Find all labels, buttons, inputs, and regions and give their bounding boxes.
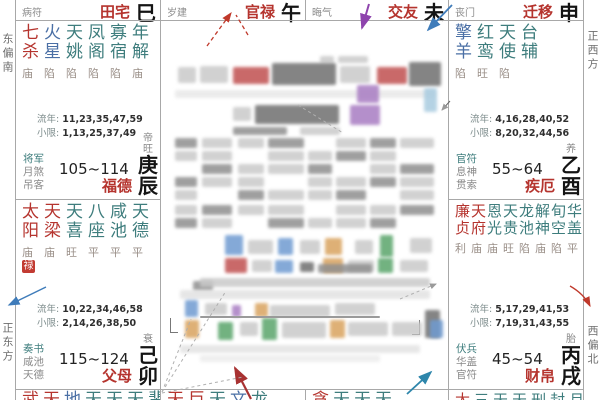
redacted-block: [238, 205, 264, 215]
year-numbers: 流年: 5,17,29,41,53小限: 7,19,31,43,55: [470, 303, 569, 331]
num-values: 4,16,28,40,52: [495, 114, 569, 125]
star-天府: 天府庙: [471, 203, 487, 252]
star-char: 盖: [567, 220, 582, 237]
redacted-block: [400, 190, 434, 200]
redacted-block: [424, 88, 437, 112]
clipped-star-top: 天: [167, 391, 184, 400]
star-恩光: 恩光庙: [487, 203, 503, 252]
bottom-palace-clipped: 天巨天文龙: [160, 389, 305, 400]
redacted-block: [308, 151, 332, 161]
star-char: 太: [22, 203, 39, 222]
star-status: 平: [88, 244, 99, 256]
clipped-star-top: 文: [230, 391, 247, 400]
year-numbers: 流年: 10,22,34,46,58小限: 2,14,26,38,50: [37, 303, 143, 331]
redacted-block: [392, 322, 422, 336]
num-label: 流年:: [470, 304, 495, 315]
clipped-star-top: 天: [85, 391, 102, 400]
liunian-line: 流年: 10,22,34,46,58: [37, 303, 143, 317]
redacted-block: [252, 260, 272, 272]
star-status: 旺: [66, 244, 77, 256]
clipped-star-top: 三: [474, 391, 489, 400]
num-label: 流年:: [470, 114, 495, 125]
star-char: 凤: [88, 24, 105, 43]
star-char: 解: [535, 203, 550, 220]
num-values: 5,17,29,41,53: [495, 304, 569, 315]
redacted-block: [233, 67, 269, 84]
star-char: 辅: [521, 43, 538, 62]
redacted-block: [350, 105, 380, 125]
god-月煞: 月煞: [23, 166, 44, 179]
star-status: 平: [132, 244, 143, 256]
god-将军: 将军: [23, 153, 44, 166]
redacted-block: [233, 127, 287, 135]
redacted-block: [377, 67, 407, 84]
god-咸池: 咸池: [23, 356, 44, 369]
star-char: 台: [521, 24, 538, 43]
redacted-block: [400, 177, 434, 187]
star-status: 庙: [535, 240, 546, 252]
clipped-star-top: 太: [455, 391, 470, 400]
redacted-block: [255, 105, 339, 124]
star-char: 年: [132, 24, 149, 43]
compass-label-due-west: 正西方: [586, 30, 599, 72]
star-char: 擎: [455, 24, 472, 43]
star-解神: 解神庙: [535, 203, 551, 252]
star-status: 陷: [551, 240, 562, 252]
star-status: 庙: [44, 244, 55, 256]
clipped-star-top: 天: [493, 391, 508, 400]
stem-branch-char: 乙: [561, 155, 581, 176]
star-char: 鸾: [477, 43, 494, 62]
minor-gods: 伏兵华盖官符: [456, 343, 477, 382]
life-stage: 帝旺: [143, 133, 153, 155]
star-char: 星: [44, 43, 61, 62]
stem-branch: 己卯: [138, 345, 158, 387]
star-status: 陷: [88, 65, 99, 77]
redacted-block: [175, 218, 197, 228]
star-status: 庙: [487, 240, 498, 252]
xiaoxian-line: 小限: 7,19,31,43,55: [470, 317, 569, 331]
redacted-block: [378, 258, 393, 273]
redacted-block: [278, 238, 293, 255]
god-贯索: 贯索: [456, 179, 477, 192]
clipped-star-top: 天: [209, 391, 226, 400]
year-numbers: 流年: 4,16,28,40,52小限: 8,20,32,44,56: [470, 113, 569, 141]
star-char: 天: [503, 203, 518, 220]
minor-gods: 奏书咸池天德: [23, 343, 44, 382]
compass-label-due-east: 正东方: [1, 322, 14, 364]
star-status: 陷: [110, 65, 121, 77]
redacted-block: [400, 164, 434, 174]
num-values: 7,19,31,43,55: [495, 318, 569, 329]
redacted-block: [336, 218, 366, 228]
palace-name: 福德: [102, 175, 132, 196]
num-label: 小限:: [37, 318, 62, 329]
redacted-block: [336, 205, 366, 215]
star-char: 空: [551, 220, 566, 237]
clipped-star-top: 天: [375, 391, 392, 400]
redacted-block: [330, 320, 345, 338]
num-values: 8,20,32,44,56: [495, 128, 569, 139]
redacted-block: [185, 300, 198, 317]
star-char: 喜: [66, 222, 83, 241]
star-columns: 七杀庙火星陷天姚陷凤阁陷寡宿陷年解庙: [22, 24, 154, 77]
redacted-block: [205, 303, 227, 315]
redacted-block: [370, 164, 396, 174]
redacted-block: [300, 127, 340, 135]
star-char: 恩: [487, 203, 502, 220]
redacted-block: [308, 177, 332, 187]
star-char: 使: [499, 43, 516, 62]
compass-label-west-north: 西偏北: [586, 325, 599, 367]
band-god: 岁建: [167, 4, 187, 19]
redacted-block: [355, 240, 373, 254]
stem-branch: 丙戌: [561, 345, 581, 387]
clipped-star-top: 天: [354, 391, 371, 400]
redacted-block: [338, 56, 368, 63]
star-char: 八: [88, 203, 105, 222]
band-palace-name: 田宅: [100, 1, 130, 22]
clipped-star-top: 封: [550, 391, 565, 400]
redacted-block: [175, 151, 197, 161]
god-华盖: 华盖: [456, 356, 477, 369]
palace-name: 财帛: [525, 365, 555, 386]
god-官符: 官符: [456, 153, 477, 166]
redacted-block: [202, 138, 232, 148]
redacted-block: [336, 190, 366, 200]
star-status: 陷: [455, 65, 466, 77]
star-char: 天: [66, 24, 83, 43]
compass-label-east-southeast: 东偏南: [1, 33, 14, 75]
band-palace-name: 迁移: [523, 1, 553, 22]
star-char: 解: [132, 43, 149, 62]
bottom-palace-clipped: 太三天天刑封月: [448, 389, 583, 400]
redacted-block: [308, 218, 332, 228]
redacted-block: [282, 322, 326, 338]
star-char: 宿: [110, 43, 127, 62]
clipped-star-top: 龙: [251, 391, 268, 400]
stem-branch-column: 胎 丙戌: [561, 334, 581, 387]
star-char: 红: [477, 24, 494, 43]
clipped-star-top: 天: [43, 391, 60, 400]
star-status: 旺: [477, 65, 488, 77]
star-台辅: 台辅: [521, 24, 543, 77]
redacted-block: [268, 205, 304, 215]
star-status: 庙: [22, 244, 33, 256]
stem-branch-char: 卯: [138, 366, 158, 387]
redacted-block: [320, 56, 334, 63]
star-columns: 太阳庙禄天梁庙天喜旺八座平咸池平天德平: [22, 203, 154, 273]
star-寡宿: 寡宿陷: [110, 24, 132, 77]
clipped-star-top: 地: [64, 391, 81, 400]
star-char: 府: [471, 220, 486, 237]
star-status: 陷: [519, 240, 530, 252]
redacted-block: [225, 258, 247, 273]
stem-branch: 乙酉: [561, 155, 581, 197]
num-values: 11,23,35,47,59: [62, 114, 143, 125]
redacted-block: [240, 322, 258, 336]
redacted-block: [200, 316, 380, 318]
redacted-block: [262, 318, 277, 340]
stem-branch: 庚辰: [138, 155, 158, 197]
star-status: 旺: [503, 240, 514, 252]
god-天德: 天德: [23, 369, 44, 382]
star-char: 贵: [503, 220, 518, 237]
band-god: 病符: [22, 4, 42, 19]
god-吊客: 吊客: [23, 179, 44, 192]
bracket-left: [170, 318, 178, 333]
clipped-star-top: 刑: [531, 391, 546, 400]
redacted-block: [400, 260, 428, 272]
redacted-block: [357, 85, 379, 103]
redacted-block: [268, 138, 304, 148]
god-官符: 官符: [456, 369, 477, 382]
star-char: 天: [66, 203, 83, 222]
star-char: 杀: [22, 43, 39, 62]
redacted-block: [238, 190, 264, 200]
redacted-block: [200, 355, 380, 362]
redacted-block: [238, 138, 264, 148]
redacted-block: [335, 303, 375, 315]
stem-branch-column: 帝旺 庚辰: [138, 133, 158, 197]
star-char: 池: [519, 220, 534, 237]
star-status: 陷: [499, 65, 510, 77]
star-char: 座: [88, 222, 105, 241]
redacted-block: [202, 177, 232, 187]
redacted-block: [268, 190, 304, 200]
redacted-block: [175, 190, 197, 200]
redacted-block: [318, 264, 372, 273]
star-char: 天: [499, 24, 516, 43]
redacted-block: [336, 151, 366, 161]
redacted-block: [410, 238, 432, 253]
redacted-block: [268, 218, 304, 228]
redacted-block: [400, 205, 434, 215]
clipped-star-top: 蜚: [148, 391, 160, 400]
band-god: 丧门: [455, 4, 475, 19]
star-凤阁: 凤阁陷: [88, 24, 110, 77]
star-columns: 擎羊陷红鸾旺天使陷台辅: [455, 24, 543, 77]
star-char: 阁: [88, 43, 105, 62]
star-红鸾: 红鸾旺: [477, 24, 499, 77]
redacted-block: [202, 218, 232, 228]
band-segment-wei: 晦气 交友 未: [305, 0, 448, 20]
palace-fude-gengchen: 七杀庙火星陷天姚陷凤阁陷寡宿陷年解庙 流年: 11,23,35,47,59小限:…: [15, 20, 160, 199]
stage-char: 帝: [143, 133, 153, 144]
redacted-block: [400, 138, 434, 148]
star-擎羊: 擎羊陷: [455, 24, 477, 77]
palace-name: 疾厄: [525, 175, 555, 196]
palace-caibo-bingxu: 廉贞利天府庙恩光庙天贵旺龙池陷解神庙旬空陷华盖平 流年: 5,17,29,41,…: [448, 199, 583, 389]
num-label: 小限:: [470, 318, 495, 329]
redacted-block: [409, 62, 441, 86]
star-char: 廉: [455, 203, 470, 220]
redacted-block: [300, 240, 320, 254]
star-龙池: 龙池陷: [519, 203, 535, 252]
god-息神: 息神: [456, 166, 477, 179]
redacted-block: [200, 66, 228, 83]
stem-branch-char: 丙: [561, 345, 581, 366]
band-palace-name: 交友: [388, 1, 418, 22]
redacted-block: [370, 177, 396, 187]
clipped-star-top: 月: [569, 391, 583, 400]
stem-branch-column: 衰 己卯: [138, 334, 158, 387]
clipped-star-top: 天: [106, 391, 123, 400]
num-values: 1,13,25,37,49: [62, 128, 136, 139]
star-天贵: 天贵旺: [503, 203, 519, 252]
star-char: 火: [44, 24, 61, 43]
redacted-block: [180, 345, 420, 353]
star-char: 光: [487, 220, 502, 237]
redacted-block: [200, 278, 430, 287]
god-伏兵: 伏兵: [456, 343, 477, 356]
star-天姚: 天姚陷: [66, 24, 88, 77]
star-旬空: 旬空陷: [551, 203, 567, 252]
clipped-star-top: 巨: [188, 391, 205, 400]
xiaoxian-line: 小限: 2,14,26,38,50: [37, 317, 143, 331]
star-咸池: 咸池平: [110, 203, 132, 273]
bottom-palace-clipped: 武天地天天天蜚: [15, 389, 160, 400]
redacted-block: [180, 290, 430, 299]
star-char: 德: [132, 222, 149, 241]
redacted-block: [233, 107, 251, 121]
star-columns: 廉贞利天府庙恩光庙天贵旺龙池陷解神庙旬空陷华盖平: [455, 203, 583, 252]
redacted-block: [255, 303, 268, 317]
center-info-panel-redacted: [160, 20, 448, 389]
redacted-block: [238, 164, 264, 174]
redacted-block: [175, 177, 197, 187]
redacted-block: [248, 240, 273, 254]
stem-branch-column: 养 乙酉: [561, 144, 581, 197]
band-segment-wu: 岁建 官禄 午: [160, 0, 305, 20]
minor-gods: 官符息神贯索: [456, 153, 477, 192]
redacted-block: [268, 164, 304, 174]
redacted-block: [218, 322, 233, 340]
stem-branch-char: 戌: [561, 366, 581, 387]
stem-branch-char: 己: [138, 345, 158, 366]
clipped-star-top: 天: [333, 391, 350, 400]
palace-fumu-jimao: 太阳庙禄天梁庙天喜旺八座平咸池平天德平 流年: 10,22,34,46,58小限…: [15, 199, 160, 389]
star-char: 华: [567, 203, 582, 220]
clipped-star-top: 贪: [312, 391, 329, 400]
redacted-block: [336, 138, 366, 148]
redacted-block: [178, 67, 196, 83]
redacted-block: [175, 205, 197, 215]
redacted-block: [185, 320, 199, 338]
palace-name: 父母: [102, 365, 132, 386]
liunian-line: 流年: 5,17,29,41,53: [470, 303, 569, 317]
star-status: 平: [567, 240, 578, 252]
star-char: 神: [535, 220, 550, 237]
star-status: 利: [455, 240, 466, 252]
star-太阳: 太阳庙禄: [22, 203, 44, 273]
star-char: 梁: [44, 222, 61, 241]
redacted-block: [370, 205, 396, 215]
redacted-block: [370, 151, 396, 161]
redacted-block: [370, 218, 396, 228]
star-char: 天: [44, 203, 61, 222]
band-palace-name: 官禄: [245, 1, 275, 22]
star-char: 七: [22, 24, 39, 43]
star-天德: 天德平: [132, 203, 154, 273]
star-char: 贞: [455, 220, 470, 237]
ziwei-doushu-chart: 东偏南 正东方 正西方 西偏北 病符 田宅 巳 岁建 官禄 午 晦气 交友 未 …: [0, 0, 600, 400]
band-god: 晦气: [312, 4, 332, 19]
redacted-block: [202, 205, 232, 215]
num-label: 小限:: [470, 128, 495, 139]
redacted-block: [300, 262, 314, 272]
redacted-block: [275, 260, 293, 273]
stem-branch-char: 辰: [138, 176, 158, 197]
star-char: 天: [471, 203, 486, 220]
stem-branch-char: 酉: [561, 176, 581, 197]
clipped-star-top: 天: [512, 391, 527, 400]
star-status: 陷: [44, 65, 55, 77]
redacted-block: [380, 235, 393, 257]
star-七杀: 七杀庙: [22, 24, 44, 77]
star-华盖: 华盖平: [567, 203, 583, 252]
num-values: 2,14,26,38,50: [62, 318, 136, 329]
redacted-block: [202, 151, 232, 161]
star-char: 羊: [455, 43, 472, 62]
band-segment-si: 病符 田宅 巳: [15, 0, 160, 20]
liunian-line: 流年: 11,23,35,47,59: [37, 113, 143, 127]
star-char: 寡: [110, 24, 127, 43]
redacted-block: [202, 164, 232, 174]
redacted-block: [238, 177, 264, 187]
redacted-block: [430, 320, 443, 338]
star-char: 龙: [519, 203, 534, 220]
clipped-star-top: 武: [22, 391, 39, 400]
star-天喜: 天喜旺: [66, 203, 88, 273]
redacted-block: [348, 322, 388, 336]
num-label: 流年:: [37, 304, 62, 315]
bottom-palace-clipped: 贪天天天: [305, 389, 448, 400]
star-status: 庙: [132, 65, 143, 77]
god-奏书: 奏书: [23, 343, 44, 356]
star-status: 庙: [471, 240, 482, 252]
star-status: 庙: [22, 65, 33, 77]
redacted-block: [336, 177, 366, 187]
star-char: 旬: [551, 203, 566, 220]
star-char: 咸: [110, 203, 127, 222]
transformation-badge: 禄: [22, 260, 35, 273]
num-values: 10,22,34,46,58: [62, 304, 143, 315]
band-segment-shen: 丧门 迁移 申: [448, 0, 583, 20]
star-char: 天: [132, 203, 149, 222]
minor-gods: 将军月煞吊客: [23, 153, 44, 192]
star-char: 姚: [66, 43, 83, 62]
redacted-block: [272, 63, 336, 85]
star-char: 池: [110, 222, 127, 241]
star-年解: 年解庙: [132, 24, 154, 77]
star-天使: 天使陷: [499, 24, 521, 77]
star-char: 阳: [22, 222, 39, 241]
num-label: 流年:: [37, 114, 62, 125]
redacted-block: [340, 66, 370, 83]
redacted-block: [308, 164, 332, 174]
star-廉贞: 廉贞利: [455, 203, 471, 252]
num-label: 小限:: [37, 128, 62, 139]
xiaoxian-line: 小限: 1,13,25,37,49: [37, 127, 143, 141]
star-天梁: 天梁庙: [44, 203, 66, 273]
redacted-block: [370, 138, 396, 148]
redacted-block: [308, 190, 332, 200]
redacted-block: [325, 238, 342, 255]
stem-branch-char: 庚: [138, 155, 158, 176]
star-火星: 火星陷: [44, 24, 66, 77]
xiaoxian-line: 小限: 8,20,32,44,56: [470, 127, 569, 141]
